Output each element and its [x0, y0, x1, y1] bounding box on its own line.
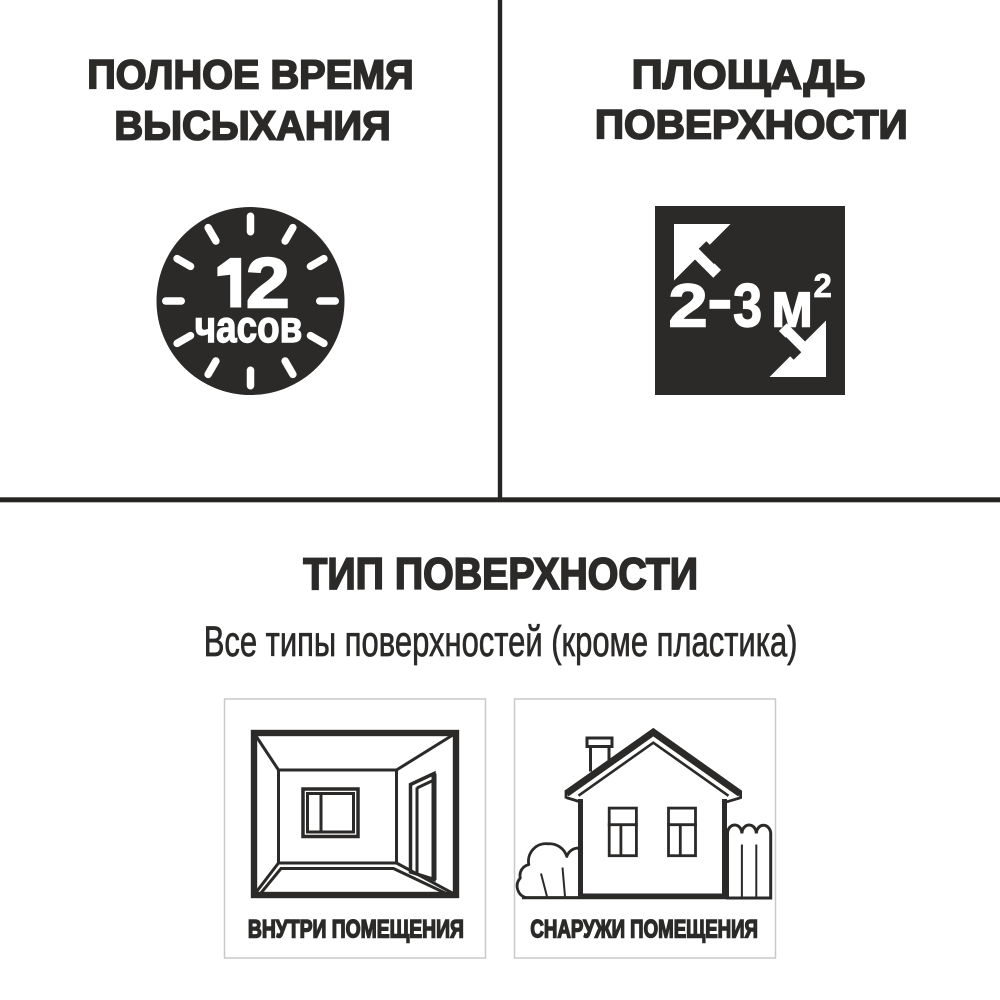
svg-text:2: 2 — [814, 267, 832, 304]
svg-text:часов: часов — [195, 301, 302, 352]
svg-text:ПОВЕРХНОСТИ: ПОВЕРХНОСТИ — [595, 102, 908, 148]
svg-text:2: 2 — [668, 272, 707, 340]
svg-text:3: 3 — [733, 272, 762, 340]
svg-text:м: м — [771, 269, 814, 341]
svg-text:Все типы поверхностей (кроме п: Все типы поверхностей (кроме пластика) — [204, 618, 798, 666]
svg-text:ПЛОЩАДЬ: ПЛОЩАДЬ — [632, 52, 866, 98]
svg-text:ВНУТРИ ПОМЕЩЕНИЯ: ВНУТРИ ПОМЕЩЕНИЯ — [248, 916, 464, 944]
svg-text:ВЫСЫХАНИЯ: ВЫСЫХАНИЯ — [114, 102, 390, 148]
svg-text:ПОЛНОЕ ВРЕМЯ: ПОЛНОЕ ВРЕМЯ — [87, 52, 414, 98]
svg-text:СНАРУЖИ ПОМЕЩЕНИЯ: СНАРУЖИ ПОМЕЩЕНИЯ — [530, 916, 758, 944]
svg-text:ТИП ПОВЕРХНОСТИ: ТИП ПОВЕРХНОСТИ — [303, 549, 698, 599]
